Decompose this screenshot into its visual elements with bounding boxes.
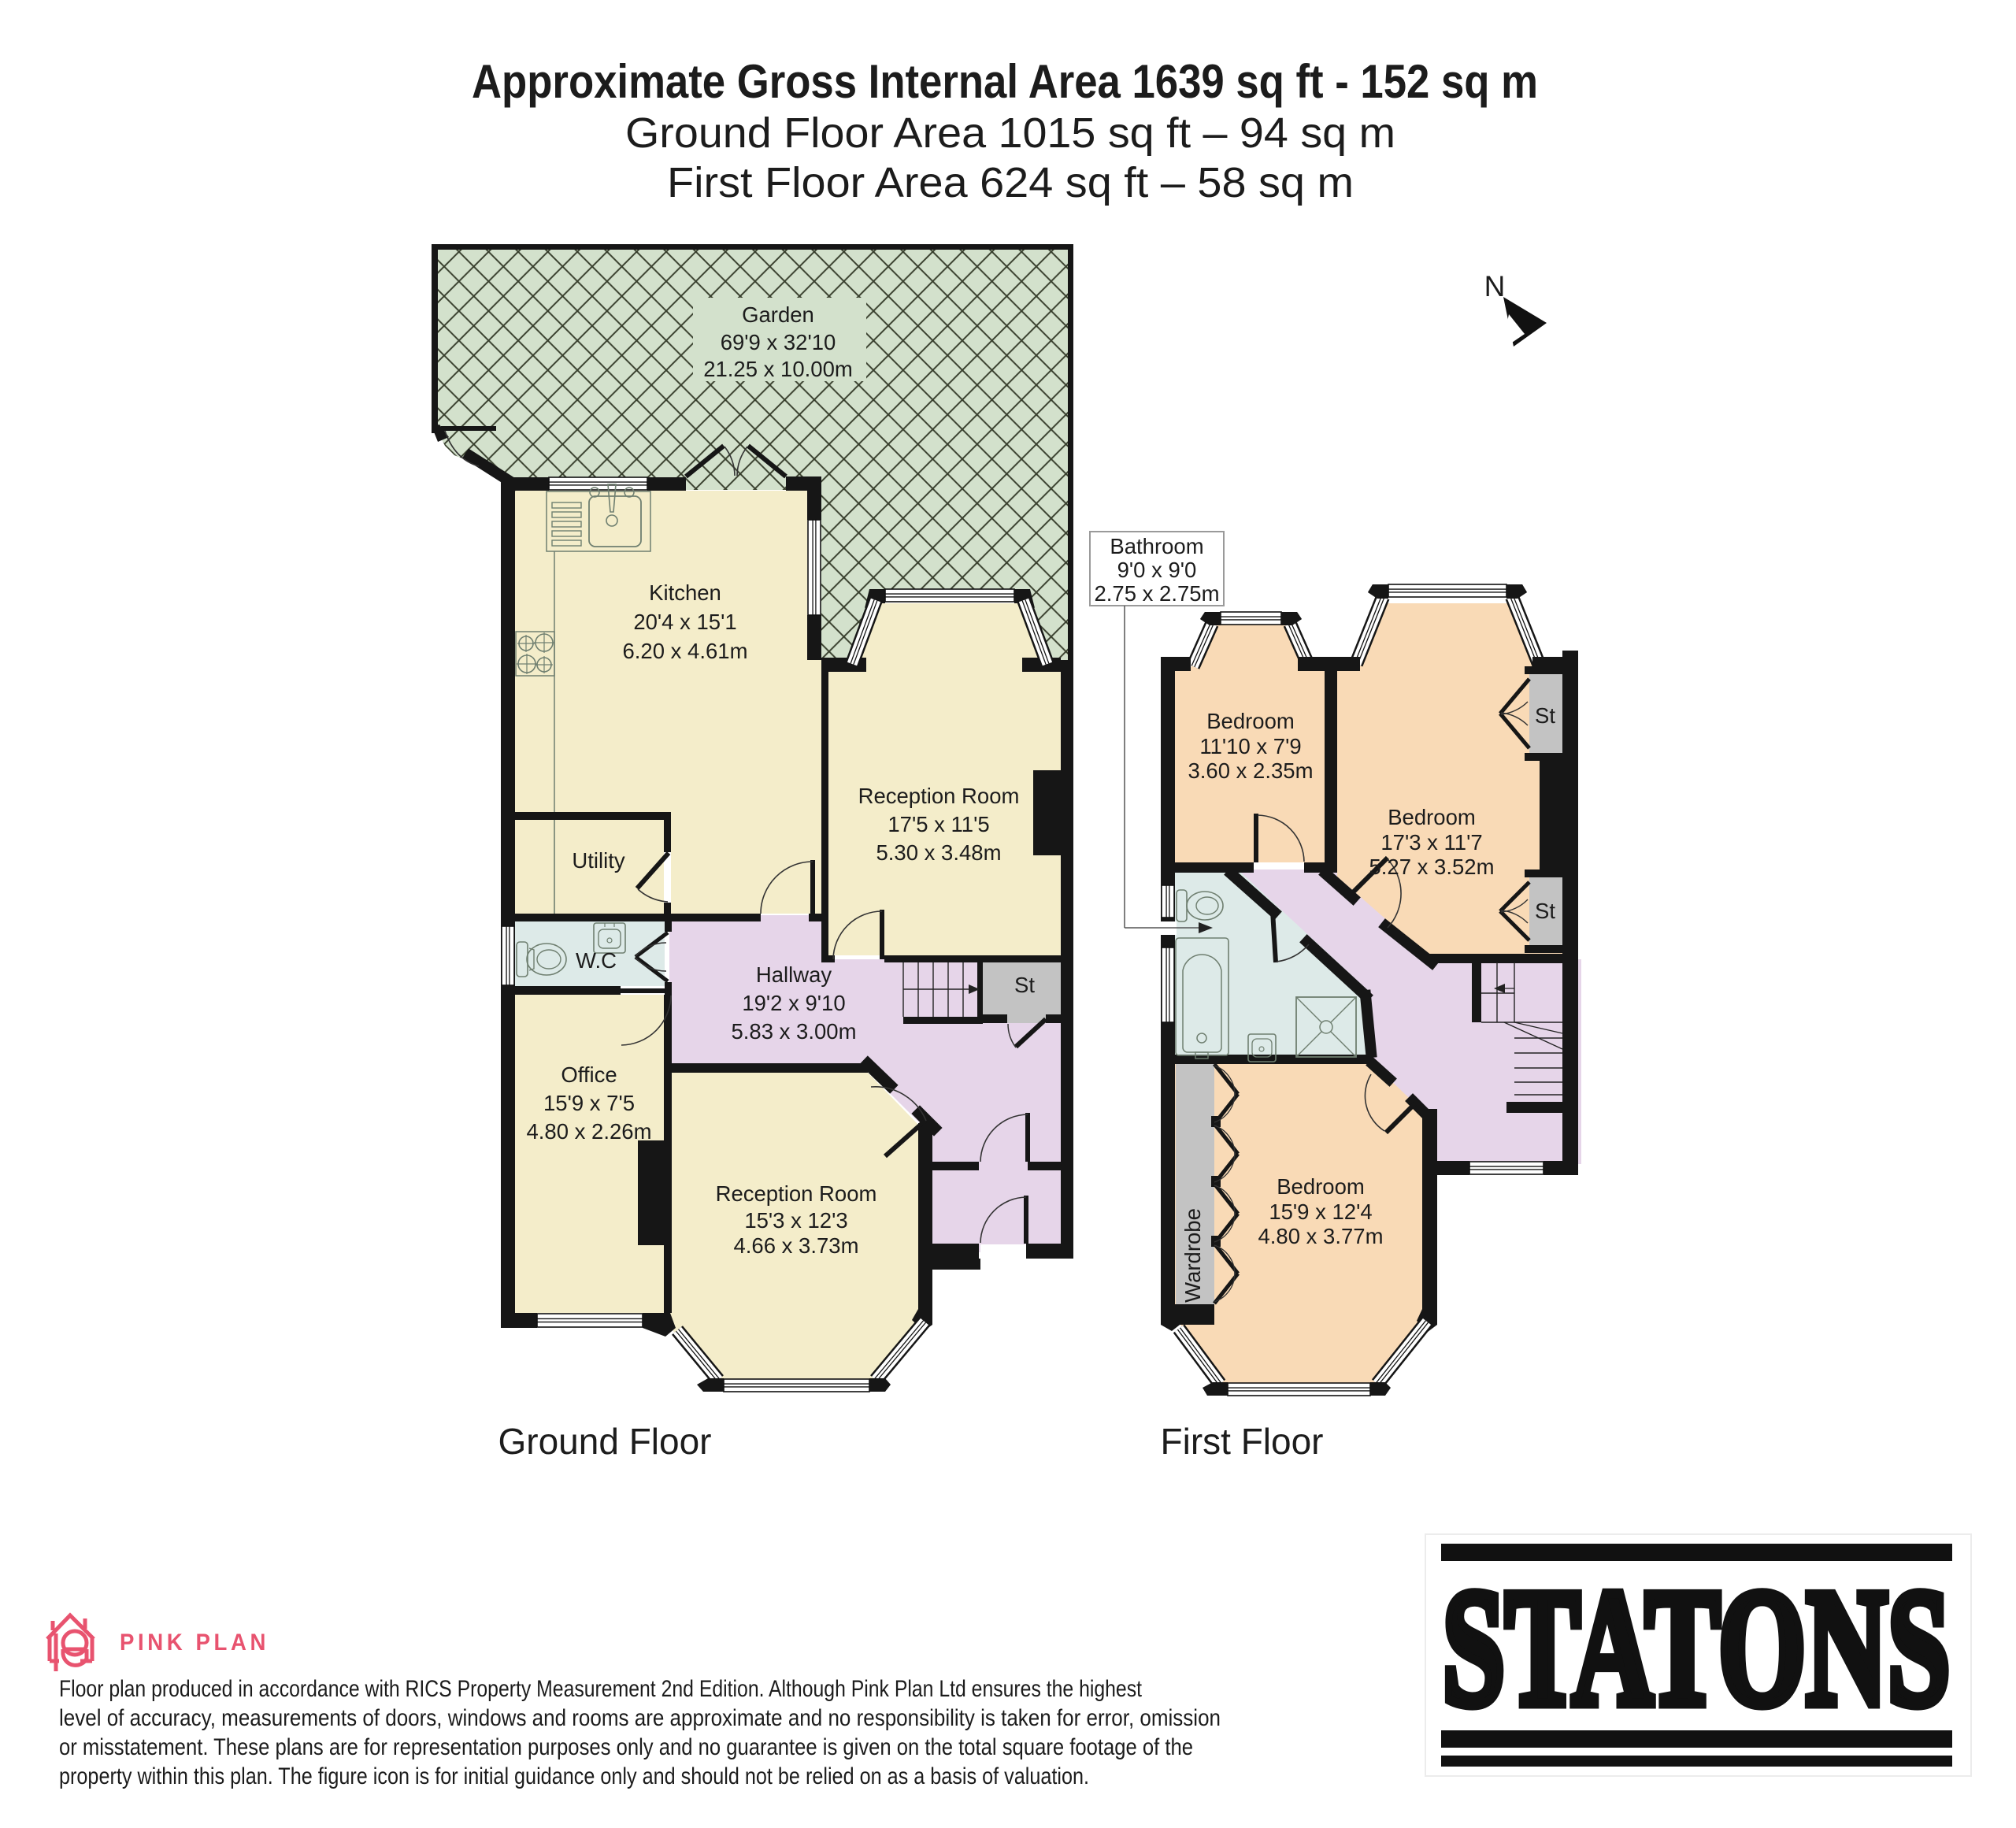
svg-text:First Floor: First Floor [1161, 1421, 1324, 1462]
svg-text:PINK PLAN: PINK PLAN [120, 1630, 269, 1656]
svg-text:4.80 x 3.77m: 4.80 x 3.77m [1258, 1224, 1384, 1248]
svg-text:Office: Office [561, 1062, 617, 1087]
svg-text:Kitchen: Kitchen [649, 580, 721, 605]
svg-text:Bathroom: Bathroom [1110, 534, 1203, 558]
svg-text:15'3 x 12'3: 15'3 x 12'3 [744, 1208, 847, 1233]
svg-text:Bedroom: Bedroom [1206, 709, 1295, 733]
svg-text:4.80 x 2.26m: 4.80 x 2.26m [527, 1119, 652, 1144]
svg-text:Hallway: Hallway [756, 962, 832, 987]
svg-text:Floor plan produced in accorda: Floor plan produced in accordance with R… [59, 1676, 1143, 1702]
svg-text:St: St [1535, 703, 1555, 728]
svg-text:69'9 x 32'10: 69'9 x 32'10 [721, 330, 836, 354]
svg-text:17'5 x 11'5: 17'5 x 11'5 [888, 812, 989, 836]
svg-text:First Floor Area 624 sq ft – 5: First Floor Area 624 sq ft – 58 sq m [667, 159, 1354, 206]
svg-text:Garden: Garden [742, 302, 814, 327]
svg-text:17'3 x 11'7: 17'3 x 11'7 [1380, 830, 1482, 855]
svg-text:Reception Room: Reception Room [716, 1181, 877, 1206]
svg-text:level of accuracy, measurement: level of accuracy, measurements of doors… [59, 1705, 1221, 1731]
svg-text:15'9 x 12'4: 15'9 x 12'4 [1269, 1200, 1372, 1224]
svg-text:St: St [1014, 973, 1035, 997]
svg-text:4.66 x 3.73m: 4.66 x 3.73m [734, 1233, 859, 1258]
svg-text:Reception Room: Reception Room [858, 784, 1020, 808]
svg-text:Ground Floor: Ground Floor [498, 1421, 711, 1462]
svg-text:W.C: W.C [576, 948, 617, 973]
svg-text:Approximate Gross Internal Are: Approximate Gross Internal Area 1639 sq … [472, 55, 1538, 108]
svg-text:2.75 x 2.75m: 2.75 x 2.75m [1095, 581, 1220, 606]
svg-text:19'2 x 9'10: 19'2 x 9'10 [742, 991, 845, 1015]
svg-text:or misstatement. These plans a: or misstatement. These plans are for rep… [59, 1734, 1193, 1760]
svg-text:9'0 x 9'0: 9'0 x 9'0 [1117, 558, 1197, 582]
svg-text:3.60 x 2.35m: 3.60 x 2.35m [1188, 758, 1314, 783]
svg-text:5.30 x 3.48m: 5.30 x 3.48m [876, 840, 1002, 865]
svg-text:STATONS: STATONS [1443, 1555, 1951, 1741]
svg-text:Bedroom: Bedroom [1277, 1174, 1365, 1199]
svg-text:20'4 x 15'1: 20'4 x 15'1 [633, 610, 736, 634]
svg-text:N: N [1484, 270, 1506, 302]
svg-text:5.27 x 3.52m: 5.27 x 3.52m [1369, 855, 1495, 879]
svg-text:15'9 x 7'5: 15'9 x 7'5 [543, 1091, 635, 1115]
svg-text:Ground Floor Area 1015 sq ft –: Ground Floor Area 1015 sq ft – 94 sq m [625, 109, 1395, 157]
svg-text:11'10 x 7'9: 11'10 x 7'9 [1199, 734, 1301, 758]
svg-text:6.20 x 4.61m: 6.20 x 4.61m [623, 639, 748, 663]
svg-text:Bedroom: Bedroom [1388, 805, 1476, 829]
svg-text:Utility: Utility [572, 848, 624, 873]
svg-text:21.25 x 10.00m: 21.25 x 10.00m [703, 357, 853, 381]
svg-text:5.83 x 3.00m: 5.83 x 3.00m [732, 1019, 857, 1044]
svg-text:property within this plan. The: property within this plan. The figure ic… [59, 1763, 1089, 1789]
svg-text:St: St [1535, 899, 1555, 923]
svg-text:Wardrobe: Wardrobe [1180, 1208, 1205, 1303]
